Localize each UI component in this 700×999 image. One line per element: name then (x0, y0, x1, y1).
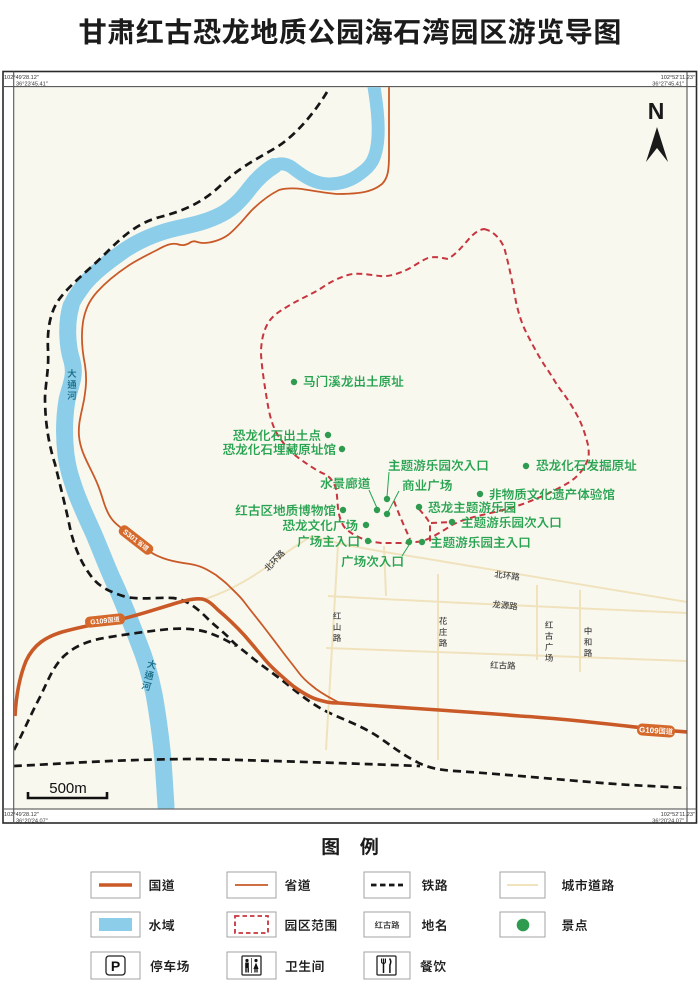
svg-text:G109: G109 (639, 725, 660, 735)
svg-text:102°52′11.23″: 102°52′11.23″ (661, 75, 695, 81)
svg-text:102°49′28.12″: 102°49′28.12″ (4, 812, 39, 818)
svg-text:36°27′45.41″: 36°27′45.41″ (652, 81, 684, 87)
svg-text:102°49′28.12″: 102°49′28.12″ (4, 75, 39, 81)
svg-text:36°20′24.07″: 36°20′24.07″ (652, 818, 684, 824)
svg-text:102°52′11.23″: 102°52′11.23″ (661, 812, 695, 818)
svg-text:P: P (111, 958, 120, 974)
svg-text:N: N (648, 98, 665, 124)
svg-text:500m: 500m (49, 780, 87, 797)
svg-text:36°20′24.07″: 36°20′24.07″ (16, 818, 48, 824)
svg-text:36°23′45.41″: 36°23′45.41″ (16, 81, 48, 87)
